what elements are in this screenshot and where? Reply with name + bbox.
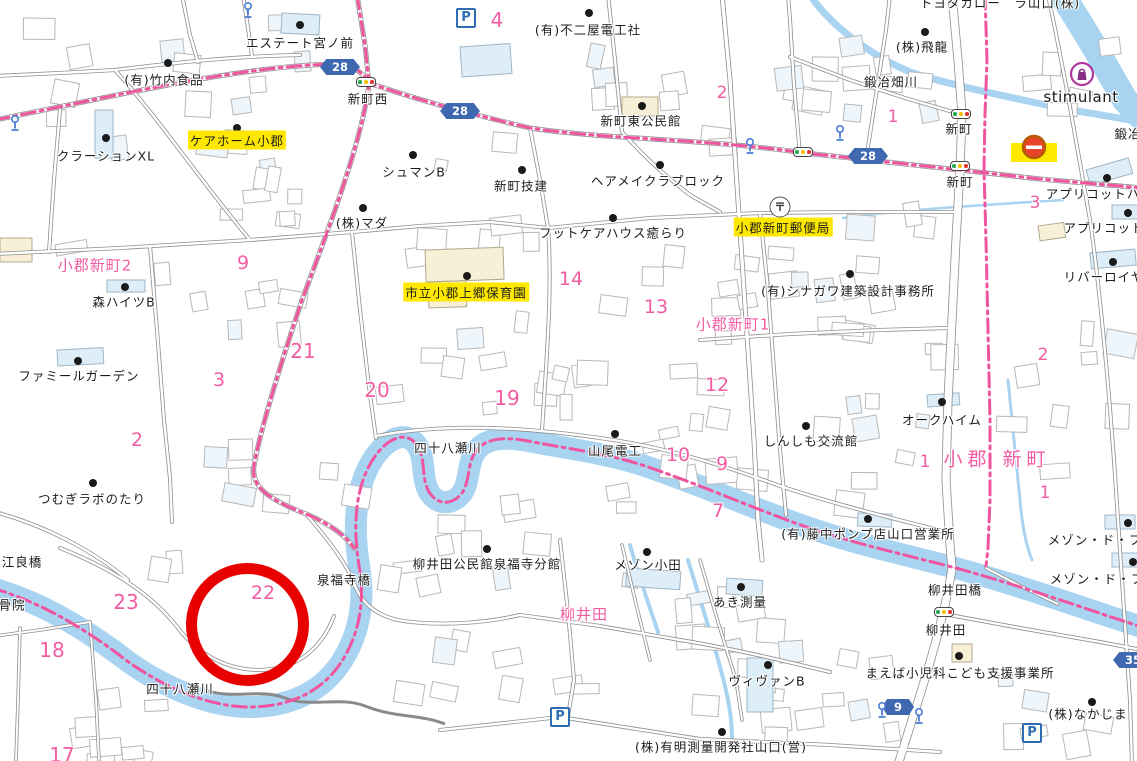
poi-label: メゾン・ド・フ — [1048, 530, 1137, 549]
poi-dot — [1124, 209, 1132, 217]
building — [848, 699, 870, 721]
traffic-light-icon — [356, 77, 376, 87]
route-shield: 28 — [848, 148, 888, 164]
building — [185, 91, 212, 118]
poi-label: (有)不二屋電工社 — [535, 20, 641, 39]
building — [1014, 363, 1040, 388]
traffic-light-bulb — [936, 610, 940, 614]
block-number: 1 — [888, 107, 899, 127]
block-number: 14 — [559, 268, 583, 290]
parking-icon: P — [550, 707, 570, 727]
poi-label: ヘアメイクラブロック — [591, 171, 725, 190]
poi-dot — [74, 357, 82, 365]
poi-dot — [737, 583, 745, 591]
poi-label: メゾン小田 — [614, 555, 682, 574]
building — [689, 413, 704, 431]
apartment-building — [460, 44, 512, 77]
poi-label: まえば小児科こども支援事業所 — [865, 663, 1054, 682]
building — [258, 279, 278, 293]
building — [883, 721, 901, 742]
poi-label: アプリコットハ — [1046, 184, 1137, 203]
poi-label: フットケアハウス癒らり — [539, 223, 687, 242]
traffic-light-bulb — [964, 164, 968, 168]
traffic-light-bulb — [959, 112, 963, 116]
poi-label: (株)有明測量開発社山口(営) — [635, 737, 807, 756]
building — [514, 311, 529, 334]
poi-label: シュマンB — [382, 162, 446, 181]
poi-label: アプリコット — [1063, 218, 1137, 237]
building — [599, 295, 628, 317]
building — [249, 76, 266, 93]
poi-label: 新町 — [946, 172, 973, 191]
traffic-light-icon — [950, 161, 970, 171]
traffic-light-bulb — [958, 164, 962, 168]
street-lamp-icon — [242, 2, 254, 23]
building — [675, 598, 693, 624]
street-lamp-icon — [9, 115, 21, 136]
poi-dot — [121, 283, 129, 291]
poi-label: (株)飛龍 — [896, 37, 948, 56]
building — [1062, 730, 1091, 760]
traffic-light-bulb — [952, 164, 956, 168]
poi-label: 四十八瀬川 — [146, 679, 214, 698]
block-number: 12 — [705, 374, 729, 396]
poi-dot — [802, 422, 810, 430]
building — [89, 738, 121, 758]
poi-label: しんしも交流館 — [764, 431, 859, 450]
building — [500, 494, 520, 515]
traffic-light-bulb — [965, 112, 969, 116]
building — [148, 556, 172, 583]
block-number: 9 — [716, 453, 728, 475]
poi-dot — [764, 661, 772, 669]
poi-dot — [846, 270, 854, 278]
poi-label-highlighted: ケアホーム小郡 — [188, 131, 286, 150]
building — [616, 502, 636, 513]
poi-label: 新町西 — [348, 89, 389, 108]
building — [416, 574, 441, 597]
building — [228, 468, 251, 486]
poi-label: (株)なかじま — [1048, 704, 1127, 723]
poi-label: エステート宮ノ前 — [246, 33, 354, 52]
poi-dot — [921, 28, 929, 36]
block-number: 2 — [1038, 345, 1049, 365]
poi-label: 柳井田公民館泉福寺分館 — [413, 554, 562, 573]
building — [658, 426, 679, 440]
road-fill-9 — [352, 232, 376, 438]
block-number: 19 — [494, 386, 519, 410]
building — [523, 232, 539, 251]
building — [768, 246, 794, 261]
traffic-light-bulb — [795, 150, 799, 154]
poi-label: (有)竹内食品 — [124, 70, 203, 89]
poi-label: トヨタカロー ラ山口(株) — [920, 0, 1080, 12]
traffic-light-bulb — [370, 80, 374, 84]
building — [154, 262, 171, 286]
building — [823, 693, 845, 707]
traffic-light-bulb — [942, 610, 946, 614]
block-number: 18 — [39, 638, 64, 662]
area-label: 小郡新町2 — [58, 255, 133, 276]
poi-dot — [718, 728, 726, 736]
traffic-light-icon — [951, 109, 971, 119]
street-lamp-icon — [876, 702, 888, 723]
poi-label: 新町技建 — [494, 176, 548, 195]
building — [493, 647, 523, 668]
road-fill-5 — [49, 110, 60, 252]
boundary-line-2 — [984, 0, 990, 566]
building — [204, 446, 228, 468]
building — [231, 97, 252, 115]
poi-label: 泉福寺橋 — [317, 570, 371, 589]
shopping-bag-icon — [1069, 61, 1095, 91]
poi-dot — [955, 652, 963, 660]
building — [457, 327, 484, 349]
block-number: 9 — [237, 252, 249, 274]
building — [288, 189, 302, 204]
building — [577, 360, 609, 385]
poi-label: 山尾電工 — [588, 441, 642, 460]
building — [718, 279, 740, 297]
building — [706, 406, 730, 430]
public-building — [1038, 222, 1066, 240]
poi-dot — [89, 479, 97, 487]
poi-label: 柳井田 — [926, 620, 967, 639]
poi-dot — [463, 272, 471, 280]
poi-dot — [518, 166, 526, 174]
building — [756, 618, 785, 644]
building — [1004, 724, 1024, 750]
poi-label: あき測量 — [713, 592, 767, 611]
building — [670, 363, 698, 379]
building — [642, 267, 664, 286]
poi-label: (有)シナガワ建築設計事務所 — [761, 281, 935, 300]
building — [1103, 329, 1137, 359]
traffic-light-bulb — [807, 150, 811, 154]
block-number: 2 — [717, 83, 728, 103]
street-lamp-icon — [744, 138, 756, 159]
poi-label: (有)藤中ポンプ店山口営業所 — [781, 524, 954, 543]
building — [228, 320, 242, 340]
building — [837, 649, 859, 669]
traffic-light-bulb — [801, 150, 805, 154]
building — [1022, 689, 1050, 712]
poi-label: 森ハイツB — [92, 292, 155, 311]
traffic-light-bulb — [364, 80, 368, 84]
post-office-icon: 〒 — [770, 197, 791, 218]
building — [552, 365, 570, 382]
poi-dot — [638, 102, 646, 110]
poi-dot — [296, 21, 304, 29]
building — [846, 214, 876, 241]
poi-label: メゾン・ド・フ — [1050, 569, 1137, 588]
poi-label: ヴィヴァンB — [728, 671, 805, 690]
building — [846, 395, 862, 414]
building — [377, 565, 402, 593]
traffic-light-bulb — [358, 80, 362, 84]
building — [996, 416, 1027, 432]
building — [144, 699, 168, 711]
building — [1080, 321, 1094, 347]
poi-label: ファミールガーデン — [18, 366, 139, 385]
poi-dot — [585, 9, 593, 17]
building — [606, 483, 631, 502]
boundary-line-1 — [254, 0, 369, 548]
building — [586, 43, 605, 69]
block-number: 7 — [712, 500, 724, 522]
area-label: 柳井田 — [560, 604, 608, 625]
block-number: 13 — [644, 296, 668, 318]
building — [122, 746, 145, 761]
poi-label: 新町東公民館 — [600, 111, 681, 130]
gas-station-icon — [1009, 134, 1059, 168]
poi-label: 四十八瀬川 — [414, 438, 482, 457]
traffic-light-icon — [793, 147, 813, 157]
poi-dot — [938, 398, 946, 406]
building — [498, 675, 523, 702]
annotation-circle — [186, 563, 309, 686]
building — [692, 694, 720, 716]
street-lamp-icon — [913, 708, 925, 729]
poi-label: 骨院 — [0, 595, 26, 614]
building — [895, 450, 915, 466]
poi-dot — [1109, 258, 1117, 266]
block-number: 1 — [1040, 483, 1051, 503]
building — [851, 472, 877, 489]
building — [393, 680, 425, 706]
poi-dot — [1103, 174, 1111, 182]
building — [856, 256, 880, 274]
poi-dot — [483, 545, 491, 553]
area-label: 小郡 新町 — [943, 445, 1050, 472]
building — [571, 683, 599, 694]
building — [659, 91, 679, 111]
building — [46, 110, 66, 127]
poi-dot — [609, 214, 617, 222]
poi-label: 鍛冶 — [1114, 124, 1137, 143]
poi-label: 鍛冶畑川 — [864, 72, 918, 91]
building — [66, 44, 93, 70]
block-number: 4 — [491, 8, 504, 32]
building — [795, 707, 824, 730]
poi-dot — [102, 134, 110, 142]
poi-label: 新町 — [945, 119, 972, 138]
poi-label: (株)マダ — [336, 213, 388, 232]
area-label: 小郡新町1 — [696, 314, 771, 335]
poi-label: オークハイム — [902, 410, 982, 429]
poi-label-highlighted: 小郡新町郵便局 — [734, 218, 833, 237]
building — [279, 211, 295, 226]
block-number: 20 — [364, 378, 389, 402]
public-building — [0, 238, 32, 262]
poi-label: 柳井田橋 — [928, 580, 982, 599]
poi-dot — [1129, 558, 1137, 566]
building — [319, 463, 338, 481]
block-number: 3 — [213, 369, 225, 391]
building — [430, 681, 459, 702]
block-number: 2 — [131, 429, 143, 451]
building — [75, 717, 98, 738]
block-number: 17 — [49, 743, 74, 761]
building — [228, 439, 253, 461]
poi-dot — [164, 59, 172, 67]
street-lamp-icon — [834, 125, 846, 146]
route-shield: 28 — [320, 59, 360, 75]
traffic-light-icon — [934, 607, 954, 617]
block-number: 10 — [666, 444, 690, 466]
building — [1050, 404, 1069, 428]
building — [560, 394, 572, 420]
building — [774, 65, 803, 91]
building — [479, 352, 507, 371]
building — [492, 132, 518, 154]
building — [843, 104, 862, 122]
poi-label: リバーロイヤ — [1064, 267, 1137, 286]
building — [903, 201, 923, 227]
poi-dot — [409, 151, 417, 159]
parking-icon: P — [456, 8, 476, 28]
poi-dot — [864, 515, 872, 523]
building — [441, 356, 465, 379]
poi-dot — [656, 161, 664, 169]
building — [222, 483, 257, 507]
poi-dot — [611, 430, 619, 438]
block-number: 21 — [290, 339, 315, 363]
block-number: 23 — [113, 590, 138, 614]
poi-label-highlighted: 市立小郡上郷保育園 — [403, 283, 529, 302]
poi-label: クラーションXL — [57, 146, 155, 165]
building — [432, 637, 457, 665]
parking-icon: P — [1022, 723, 1042, 743]
route-shield: 28 — [440, 103, 480, 119]
poi-dot — [359, 204, 367, 212]
building — [865, 394, 879, 410]
building — [839, 35, 865, 57]
building — [190, 291, 208, 312]
traffic-light-bulb — [948, 610, 952, 614]
building — [734, 255, 760, 273]
traffic-light-bulb — [953, 112, 957, 116]
poi-dot — [1124, 519, 1132, 527]
building — [1081, 351, 1098, 365]
block-number: 3 — [1030, 193, 1041, 213]
poi-label: 江良橋 — [2, 552, 43, 571]
building — [663, 245, 685, 268]
block-number: 1 — [920, 452, 931, 472]
building — [1099, 37, 1122, 57]
map-canvas[interactable]: エステート宮ノ前(有)竹内食品クラーションXLケアホーム小郡新町西シュマンB(株… — [0, 0, 1137, 761]
building — [802, 89, 832, 113]
building — [23, 18, 55, 39]
poi-label: つむぎラボのたり — [38, 489, 146, 508]
building — [97, 687, 121, 710]
building — [416, 228, 447, 252]
